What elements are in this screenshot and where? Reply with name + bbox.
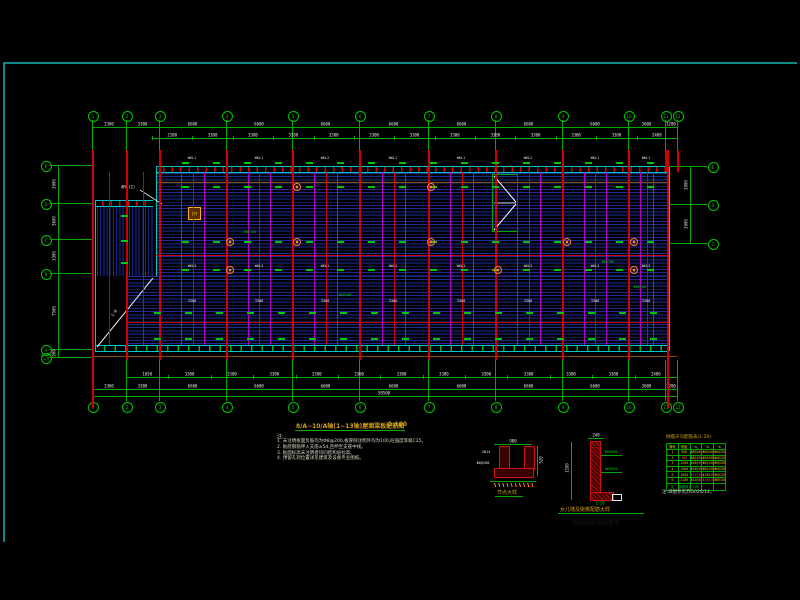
- dim-left-tick: [56, 239, 60, 240]
- dim-bot2-tick: [428, 387, 429, 391]
- magenta-line: [204, 172, 205, 345]
- beam-label-top: WKL1: [457, 156, 465, 160]
- grid-bubble-left: 1/A: [41, 353, 52, 364]
- mid-dim-text: 3300: [389, 299, 397, 303]
- mid-dim-text: 3300: [188, 299, 196, 303]
- rebar-table: 编号宽度①②③1600Φ8@200Φ8@200Φ6@2502900Φ8@150Φ…: [666, 443, 726, 491]
- note-line: 4. 预留孔洞位置详见建筑及设备专业图纸。: [277, 456, 426, 462]
- dim-left-tick: [56, 203, 60, 204]
- dim-top1-text: 6600: [590, 122, 600, 127]
- dim-bot2-text: 3300: [104, 384, 114, 389]
- beam-label-top: WKL1: [591, 156, 599, 160]
- column-marker: [293, 238, 301, 246]
- dim-top2-text: 3300: [329, 133, 339, 138]
- dim-bot1-tick: [507, 375, 508, 379]
- grid-bubble-top: 8: [491, 111, 502, 122]
- beam-label-mid: WKL3: [591, 264, 599, 268]
- rebar-table-cell: Φ12@100: [690, 477, 702, 483]
- grid-stem-bottom: [292, 360, 293, 401]
- grid-bubble-top: 9: [558, 111, 569, 122]
- magenta-line: [606, 172, 607, 345]
- dim-top1-tick: [495, 125, 496, 129]
- dim-top2-text: 2400: [652, 133, 662, 138]
- dim-bot2-text: 3300: [138, 384, 148, 389]
- grid-stem-bottom: [126, 360, 127, 401]
- dim-top2-text: 3300: [208, 133, 218, 138]
- dim-top2-text: 3300: [248, 133, 258, 138]
- magenta-line: [450, 172, 451, 345]
- dim-bot2-text: 6600: [188, 384, 198, 389]
- dim-left-tick: [56, 165, 60, 166]
- magenta-line: [181, 172, 182, 345]
- dim-top2-text: 2100: [167, 133, 177, 138]
- grid-stem-bottom: [665, 360, 666, 401]
- dim-top2-tick: [515, 136, 516, 140]
- dim-top1-tick: [126, 125, 127, 129]
- dim-top2-tick: [677, 136, 678, 140]
- dim-right-tick: [688, 204, 692, 205]
- grid-bubble-right: C: [708, 239, 719, 250]
- ghost-watermark: 网络图纸仅供参考: [572, 518, 620, 527]
- rebar-mark-row: [97, 262, 152, 264]
- dim-top2-text: 3300: [531, 133, 541, 138]
- rebar-table-cell: Φ10@100: [690, 466, 702, 472]
- column-marker: [226, 266, 234, 274]
- dim-top2-line: [152, 138, 677, 139]
- magenta-line: [248, 172, 249, 345]
- grid-bubble-top: 3: [155, 111, 166, 122]
- dim-bot1-text: 3300: [609, 372, 619, 377]
- detail-b-caption: 女儿墙及挑檐配筋大样: [560, 506, 610, 513]
- detail-a-ground-line: [490, 481, 536, 482]
- dim-top2-tick: [233, 136, 234, 140]
- drawing-scale: 1:100: [388, 421, 407, 428]
- detail-b-scale: 1:20: [595, 501, 605, 506]
- dim-left-line: [58, 165, 59, 357]
- dim-top1-text: 3600: [642, 122, 652, 127]
- column-marker: [427, 238, 435, 246]
- detail-a-caption-underline: [495, 496, 523, 497]
- grid-bubble-bottom: 2: [122, 402, 133, 413]
- detail-b-dim-left: 1100: [565, 463, 570, 473]
- rebar-mark-row: [158, 241, 667, 243]
- magenta-line: [584, 172, 585, 345]
- column-marker: [630, 238, 638, 246]
- rebar-table-cell: Φ10@150: [690, 461, 702, 467]
- grid-stem-bottom: [677, 360, 678, 401]
- detail-b-rebar-note-1: Φ8@200: [605, 450, 618, 454]
- magenta-line: [314, 172, 315, 345]
- rebar-table-cell: Φ6@250: [714, 450, 726, 456]
- dim-bot1-text: 3300: [397, 372, 407, 377]
- grid-bubble-top: 5: [288, 111, 299, 122]
- rebar-table-cell: [714, 483, 726, 490]
- dim-top2-tick: [637, 136, 638, 140]
- grid-red-vertical: [159, 150, 161, 360]
- dim-top2-tick: [394, 136, 395, 140]
- grid-bubble-right: D: [708, 200, 719, 211]
- dim-top1-line: [92, 127, 677, 128]
- beam-label-top: WKL2: [321, 156, 329, 160]
- grid-stem-bottom: [495, 360, 496, 401]
- rebar-table-cell: Φ8@200: [702, 455, 714, 461]
- grid-bubble-bottom: 12: [673, 402, 684, 413]
- rebar-table-cell: Φ6@150: [714, 477, 726, 483]
- grid-red-vertical: [628, 150, 630, 360]
- rebar-spacing-note: Φ8@150: [244, 230, 257, 234]
- beam-label-top: WKL1: [255, 156, 263, 160]
- dim-right-text: 3900: [684, 219, 689, 229]
- mid-bay-red-line: [647, 172, 648, 345]
- dim-bot2-tick: [226, 387, 227, 391]
- mid-bay-red-line: [109, 172, 110, 345]
- detail-b-caption-underline: [558, 513, 644, 514]
- dim-top2-tick: [314, 136, 315, 140]
- dim-left-tick: [56, 349, 60, 350]
- grid-red-vertical: [359, 150, 361, 360]
- grid-red-vertical: [428, 150, 430, 360]
- grid-red-vertical-left: [92, 150, 94, 408]
- rebar-mark-row: [158, 186, 667, 188]
- dim-bot1-tick: [126, 375, 127, 379]
- rebar-table-cell: Φ8@200: [690, 450, 702, 456]
- dim-bot1-tick: [550, 375, 551, 379]
- column-marker: [293, 183, 301, 191]
- dim-bot2-tick: [628, 387, 629, 391]
- grid-bubble-bottom: 4: [222, 402, 233, 413]
- dim-bot1-tick: [423, 375, 424, 379]
- grid-bubble-top: 7: [424, 111, 435, 122]
- dim-left-tick: [56, 273, 60, 274]
- dim-top1-tick: [159, 125, 160, 129]
- dim-total-text: 58500: [378, 391, 390, 396]
- grid-stem-bottom: [628, 360, 629, 401]
- dim-bot2-tick: [495, 387, 496, 391]
- dim-bot1-text: 3300: [185, 372, 195, 377]
- dim-bot2-tick: [159, 387, 160, 391]
- column-marker: [563, 238, 571, 246]
- grid-stem-right: [667, 166, 707, 167]
- detail-a-stem-right: [524, 446, 535, 470]
- dim-bot1-text: 3300: [439, 372, 449, 377]
- grid-bubble-left: C: [41, 235, 52, 246]
- dim-bot1-tick: [465, 375, 466, 379]
- beam-label-top: WKL1: [642, 156, 650, 160]
- detail-a-dim-top: 900: [509, 439, 516, 444]
- beam-label-mid: WKL3: [255, 264, 263, 268]
- mid-dim-text: 3300: [321, 299, 329, 303]
- grid-stem-bottom: [562, 360, 563, 401]
- detail-a-rebar-label-2: Φ6@200: [477, 461, 490, 465]
- grid-red-vertical: [126, 150, 128, 360]
- dim-bot2-text: 6600: [524, 384, 534, 389]
- dim-bot2-text: 6600: [254, 384, 264, 389]
- dim-top2-tick: [475, 136, 476, 140]
- magenta-line: [640, 172, 641, 345]
- detail-a-base: [494, 468, 534, 478]
- dim-top1-tick: [359, 125, 360, 129]
- dim-top1-tick: [292, 125, 293, 129]
- dim-bot1-tick: [168, 375, 169, 379]
- title-underline: [295, 430, 405, 431]
- dim-right-tick: [688, 166, 692, 167]
- detail-a-stem-left: [499, 446, 510, 470]
- grid-bubble-bottom: 10: [624, 402, 635, 413]
- beam-label-mid: WKL3: [457, 264, 465, 268]
- beam-label-mid: WKL3: [188, 264, 196, 268]
- magenta-line: [382, 172, 383, 345]
- dim-bot2-text: 3600: [642, 384, 652, 389]
- magenta-line: [405, 172, 406, 345]
- grid-bubble-bottom: 6: [355, 402, 366, 413]
- beam-label-mid: WKL3: [642, 264, 650, 268]
- dim-bot1-tick: [253, 375, 254, 379]
- detail-b-dim-top-line: [588, 438, 604, 439]
- dim-top1-text: 3300: [138, 122, 148, 127]
- rebar-table-cell: Φ8@150: [702, 466, 714, 472]
- dim-top2-tick: [354, 136, 355, 140]
- dim-bot1-tick: [592, 375, 593, 379]
- grid-bubble-bottom: 5: [288, 402, 299, 413]
- column-marker: [494, 266, 502, 274]
- magenta-line: [517, 172, 518, 345]
- dim-top2-text: 3300: [490, 133, 500, 138]
- grid-bubble-bottom: 7: [424, 402, 435, 413]
- rebar-table-title: 挑檐天沟配筋表(1:20): [666, 434, 711, 440]
- grid-red-vertical: [495, 150, 497, 360]
- dim-total-line: [92, 396, 677, 397]
- grid-red-vertical: [292, 150, 294, 360]
- dim-bot1-text: 3300: [227, 372, 237, 377]
- mid-bay-red-line: [595, 172, 596, 345]
- column-marker: [427, 183, 435, 191]
- detail-a-rebar-label-1: 2Φ14: [482, 450, 490, 454]
- grid-bubble-top: 10: [624, 111, 635, 122]
- magenta-line: [337, 172, 338, 345]
- beam-label-top: WKL1: [188, 156, 196, 160]
- dim-bot1-text: 2400: [651, 372, 661, 377]
- beam-label-top: WKL2: [524, 156, 532, 160]
- dim-right-text: 3900: [684, 180, 689, 190]
- grid-bubble-left: E: [41, 161, 52, 172]
- grid-stem-bottom: [159, 360, 160, 401]
- grid-bubble-bottom: 11: [661, 402, 672, 413]
- dim-bot1-text: 3300: [524, 372, 534, 377]
- rebar-table-cell: Φ6@200: [714, 466, 726, 472]
- rebar-table-cell: Φ8@150: [690, 455, 702, 461]
- rebar-table-cell: Φ12@100: [690, 472, 702, 478]
- detail-b-leader-1: [601, 455, 622, 456]
- mid-dim-text: 3300: [524, 299, 532, 303]
- dim-top1-tick: [92, 125, 93, 129]
- dim-top1-tick: [562, 125, 563, 129]
- note-line: 1. 未注明板面负筋均为Φ8@200,板厚除注明外均为100,砼强度等级C25。: [277, 439, 426, 445]
- grid-stem-bottom: [226, 360, 227, 401]
- rebar-mark-row: [97, 215, 152, 217]
- magenta-line: [270, 172, 271, 345]
- mid-bay-red-line: [193, 172, 194, 345]
- detail-b-drip-edge: [612, 494, 622, 501]
- dim-top2-tick: [556, 136, 557, 140]
- dim-bot1-tick: [296, 375, 297, 379]
- rebar-mark-row: [130, 338, 667, 340]
- grid-bubble-left: D: [41, 199, 52, 210]
- rebar-table-cell: Φ10@150: [702, 472, 714, 478]
- dim-top2-tick: [435, 136, 436, 140]
- beam-label-mid: WKL3: [321, 264, 329, 268]
- dim-right-tick: [688, 243, 692, 244]
- notes-block: 1. 未注明板面负筋均为Φ8@200,板厚除注明外均为100,砼强度等级C25。…: [277, 439, 426, 462]
- grid-red-vertical: [677, 150, 679, 172]
- mid-bay-red-line: [143, 172, 144, 345]
- grid-red-vertical-right: [667, 150, 669, 408]
- grid-bubble-bottom: 8: [491, 402, 502, 413]
- mid-bay-red-line: [326, 172, 327, 345]
- dim-bot1-tick: [677, 375, 678, 379]
- grid-bubble-top: 2: [122, 111, 133, 122]
- dim-bot2-tick: [562, 387, 563, 391]
- dim-left-text: 7500: [52, 306, 57, 316]
- rebar-spacing-note: Φ8@200: [339, 293, 352, 297]
- dim-top2-tick: [152, 136, 153, 140]
- detail-a-caption: 节点大样: [497, 489, 517, 496]
- grid-stem-right: [667, 204, 707, 205]
- dim-bot1-tick: [338, 375, 339, 379]
- dim-top1-text: 6600: [321, 122, 331, 127]
- magenta-line: [473, 172, 474, 345]
- grid-bubble-top: 4: [222, 111, 233, 122]
- rebar-mark-row: [158, 269, 667, 271]
- grid-red-vertical: [562, 150, 564, 360]
- rebar-table-cell: Φ6@250: [714, 455, 726, 461]
- rebar-spacing-note: Φ8@200: [634, 285, 647, 289]
- dim-top1-text: 6600: [188, 122, 198, 127]
- beam-label-mid: WKL3: [524, 264, 532, 268]
- grid-stem-bottom: [428, 360, 429, 401]
- beam-label-top: WKL1: [389, 156, 397, 160]
- dim-top1-tick: [677, 125, 678, 129]
- dim-bot2-tick: [126, 387, 127, 391]
- grid-stem-bottom: [359, 360, 360, 401]
- dim-bot1-text: 3300: [354, 372, 364, 377]
- grid-red-vertical: [226, 150, 228, 360]
- grid-bubble-top: 12: [673, 111, 684, 122]
- grid-bubble-top: 6: [355, 111, 366, 122]
- dim-bot2-text: 6600: [457, 384, 467, 389]
- dim-bot2-text: 6600: [590, 384, 600, 389]
- mid-dim-text: 3300: [457, 299, 465, 303]
- dim-top1-text: 6600: [524, 122, 534, 127]
- dim-top2-text: 3300: [369, 133, 379, 138]
- rebar-table-cell: Φ6@200: [714, 461, 726, 467]
- column-marker: [226, 238, 234, 246]
- mid-bay-red-line: [462, 172, 463, 345]
- detail-b-leader-2: [601, 472, 622, 473]
- generated-linework-layer: 123456789101112123456789101112EDCBA1/AED…: [0, 0, 800, 600]
- dim-left-tick: [56, 357, 60, 358]
- dim-bot1-text: 3300: [566, 372, 576, 377]
- rebar-table-cell: Φ8@200: [702, 450, 714, 456]
- column-marker: [630, 266, 638, 274]
- dim-bot1-text: 3300: [481, 372, 491, 377]
- dim-top1-tick: [226, 125, 227, 129]
- dim-top1-text: 6600: [389, 122, 399, 127]
- dim-bot2-text: 6600: [321, 384, 331, 389]
- grid-bubble-bottom: 9: [558, 402, 569, 413]
- dim-bot2-tick: [677, 387, 678, 391]
- magenta-line: [653, 172, 654, 345]
- dim-bot1-text: 1650: [142, 372, 152, 377]
- dim-top1-text: 3300: [104, 122, 114, 127]
- grid-bubble-top: 11: [661, 111, 672, 122]
- grid-bubble-top: 1: [88, 111, 99, 122]
- dim-left-text: 3900: [52, 179, 57, 189]
- magenta-line: [540, 172, 541, 345]
- mid-dim-text: 3300: [255, 299, 263, 303]
- dim-top2-text: 3300: [571, 133, 581, 138]
- detail-a-dim-top-line: [494, 444, 532, 445]
- dim-top2-text: 3300: [450, 133, 460, 138]
- mid-bay-red-line: [529, 172, 530, 345]
- rebar-mark-row: [130, 312, 667, 314]
- rebar-mark-row: [158, 162, 667, 164]
- dim-bot1-line: [126, 377, 677, 378]
- mid-bay-red-line: [394, 172, 395, 345]
- dim-top2-text: 3300: [289, 133, 299, 138]
- dim-bot2-text: 6600: [389, 384, 399, 389]
- mid-dim-text: 3300: [642, 299, 650, 303]
- dim-bot2-tick: [292, 387, 293, 391]
- mid-bay-red-line: [259, 172, 260, 345]
- dim-bot1-tick: [635, 375, 636, 379]
- rebar-table-cell: Φ10@100: [702, 477, 714, 483]
- rebar-mark-row: [97, 240, 152, 242]
- dim-top2-tick: [273, 136, 274, 140]
- dim-top2-text: 3300: [410, 133, 420, 138]
- dim-left-text: 3600: [52, 216, 57, 226]
- detail-b-dim-top: 240: [592, 433, 599, 438]
- rebar-spacing-note: Φ8@200: [602, 260, 615, 264]
- grid-stem-right: [667, 243, 707, 244]
- detail-b-dim-left-line: [571, 442, 572, 500]
- dim-left-text: 3300: [52, 251, 57, 261]
- grid-bubble-right: E: [708, 162, 719, 173]
- beam-label-mid: WKL3: [389, 264, 397, 268]
- dim-top1-tick: [628, 125, 629, 129]
- grid-bubble-bottom: 3: [155, 402, 166, 413]
- detail-b-rebar-note-2: Φ6@250: [605, 467, 618, 471]
- rebar-table-cell: Φ6@150: [714, 472, 726, 478]
- detail-b-parapet-wall: [590, 441, 601, 497]
- dim-top2-tick: [596, 136, 597, 140]
- dim-bot1-tick: [380, 375, 381, 379]
- cad-drawing-viewport: 1:8 4M6(2) DT 12345678910111212345678910…: [0, 0, 800, 600]
- rebar-table-note: 注:详图参见苏G02S/14。: [662, 489, 714, 495]
- mid-dim-text: 3300: [591, 299, 599, 303]
- dim-top1-text: 1200: [666, 122, 676, 127]
- rebar-table-cell: Φ8@150: [702, 461, 714, 467]
- detail-a-dim-right: 520: [539, 456, 544, 463]
- dim-bot2-tick: [359, 387, 360, 391]
- dim-bot1-text: 3300: [312, 372, 322, 377]
- dim-bot1-text: 3300: [270, 372, 280, 377]
- dim-top2-tick: [192, 136, 193, 140]
- dim-left-text: 900: [52, 349, 57, 356]
- dim-top2-text: 3300: [612, 133, 622, 138]
- dim-top1-text: 6600: [254, 122, 264, 127]
- dim-bot1-tick: [211, 375, 212, 379]
- dim-top1-text: 6600: [457, 122, 467, 127]
